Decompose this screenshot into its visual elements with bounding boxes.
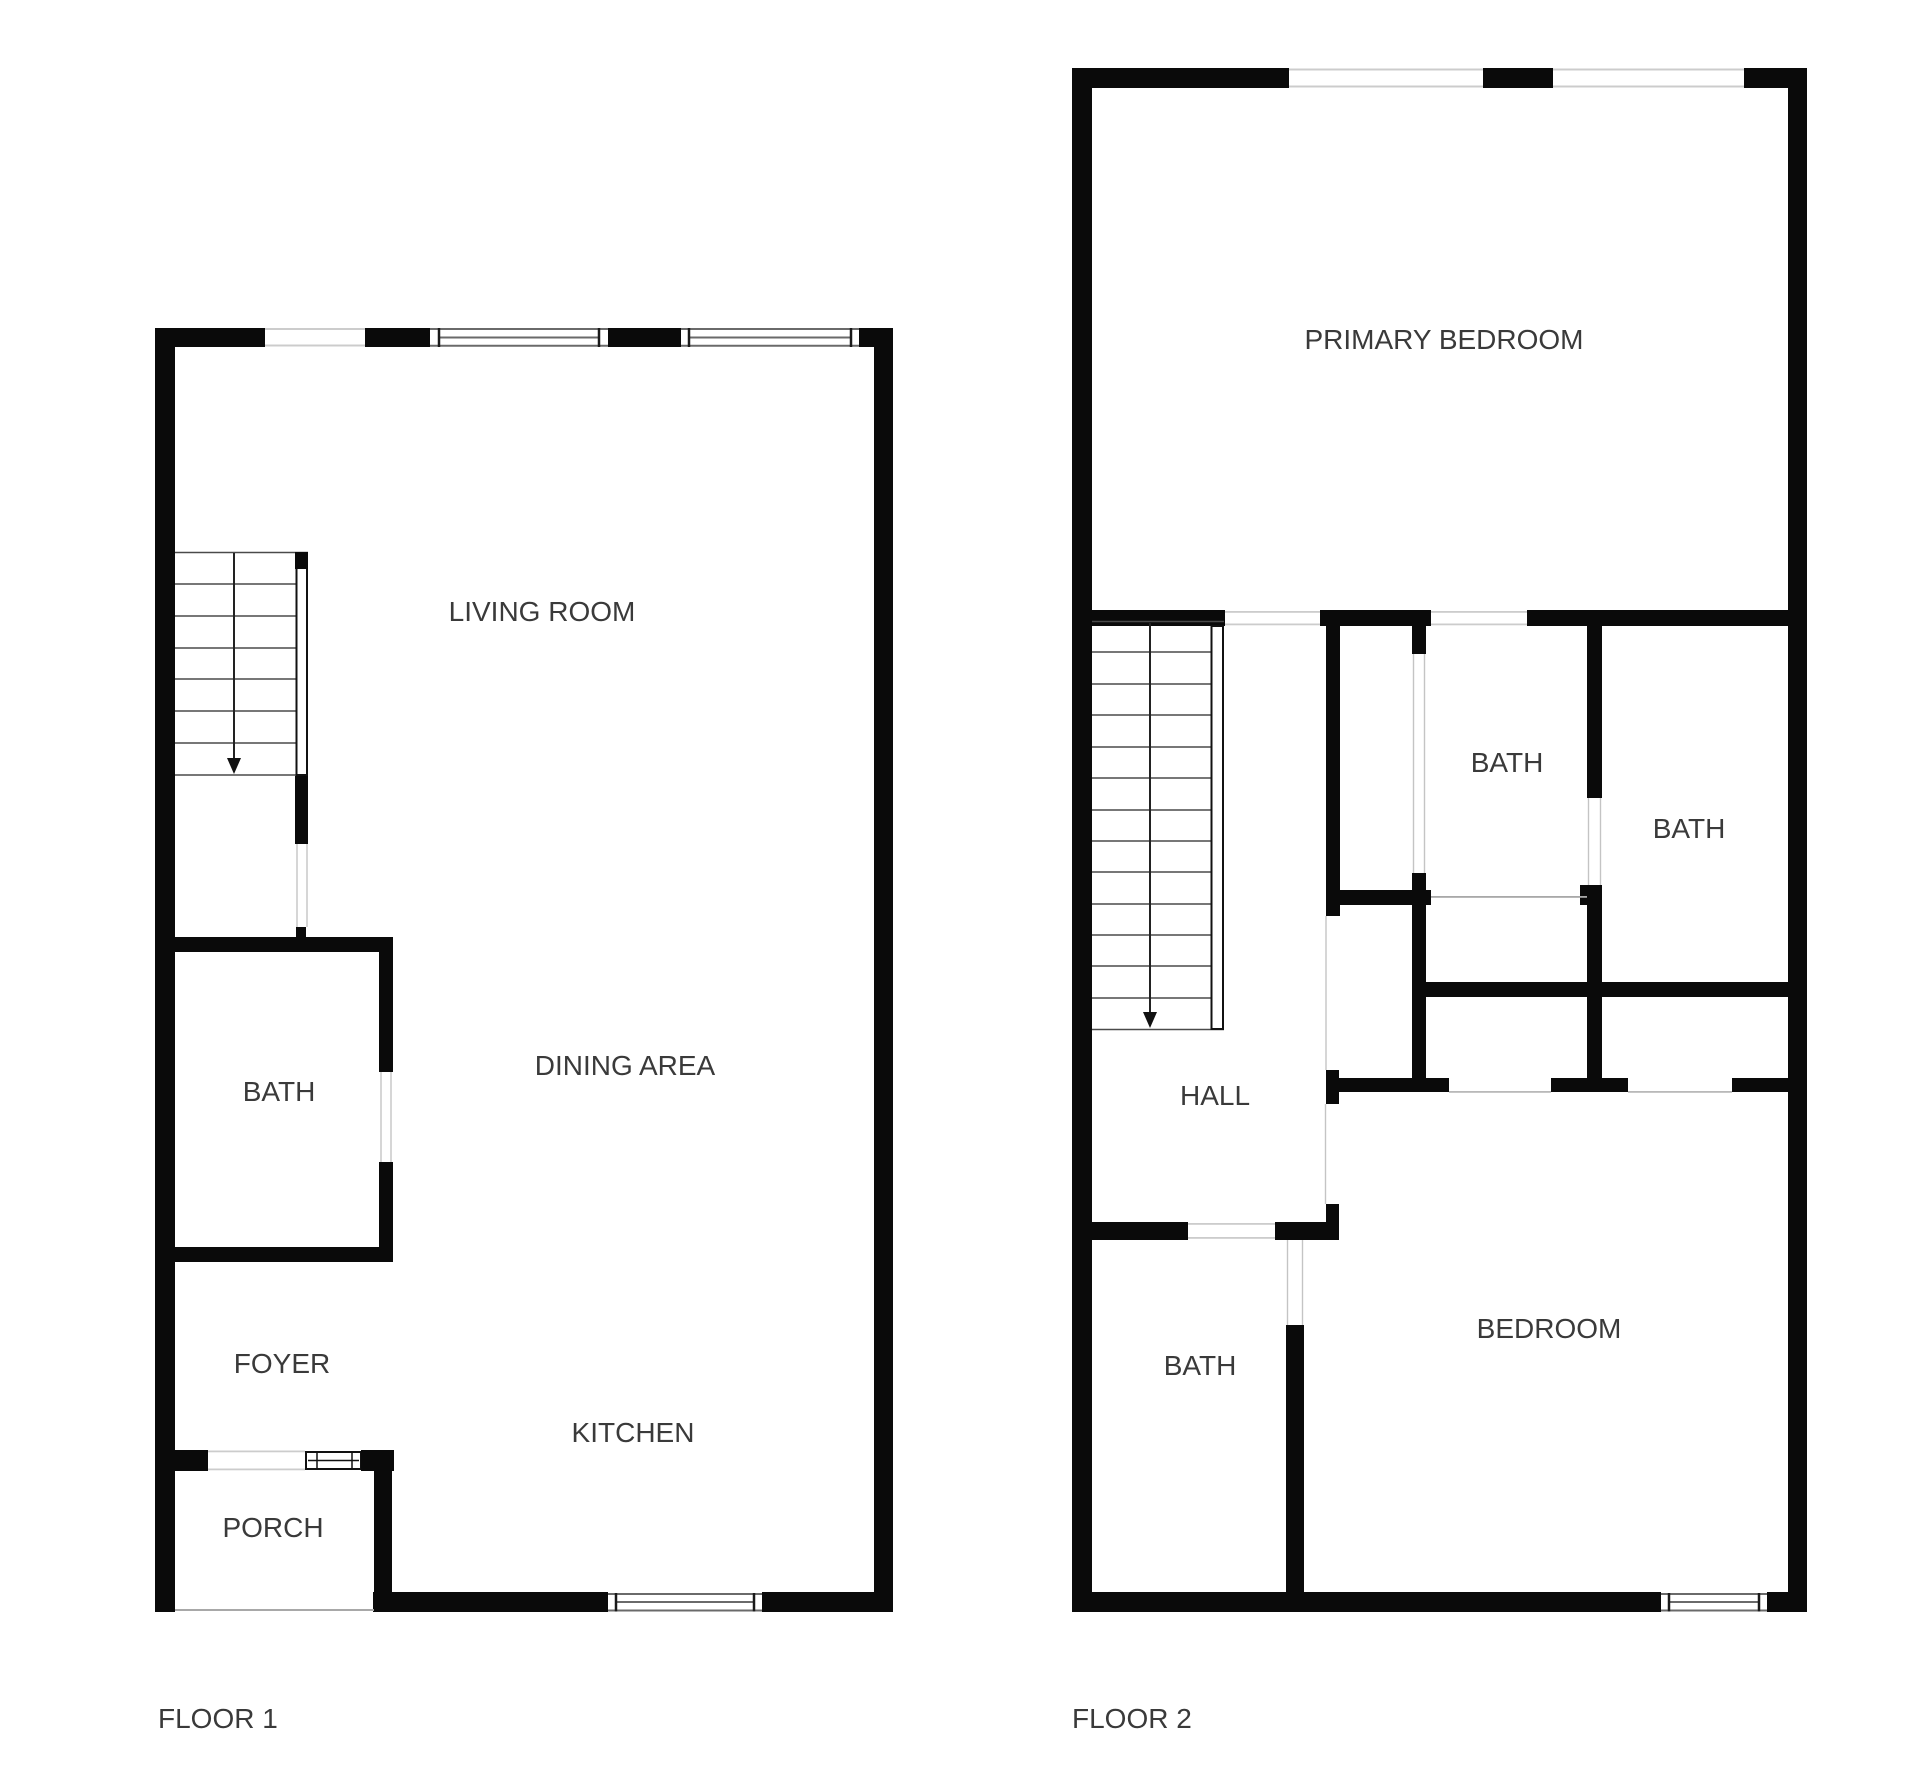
svg-text:DINING AREA: DINING AREA (535, 1050, 716, 1081)
svg-text:HALL: HALL (1180, 1080, 1250, 1111)
svg-text:FOYER: FOYER (234, 1348, 330, 1379)
svg-text:BATH: BATH (1471, 747, 1544, 778)
svg-text:LIVING ROOM: LIVING ROOM (449, 596, 636, 627)
svg-text:BATH: BATH (1164, 1350, 1237, 1381)
svg-text:FLOOR 1: FLOOR 1 (158, 1703, 278, 1734)
svg-text:PRIMARY BEDROOM: PRIMARY BEDROOM (1304, 324, 1583, 355)
svg-text:FLOOR 2: FLOOR 2 (1072, 1703, 1192, 1734)
svg-text:BATH: BATH (243, 1076, 316, 1107)
svg-text:KITCHEN: KITCHEN (572, 1417, 695, 1448)
svg-text:PORCH: PORCH (222, 1512, 323, 1543)
svg-text:BEDROOM: BEDROOM (1477, 1313, 1622, 1344)
svg-text:BATH: BATH (1653, 813, 1726, 844)
